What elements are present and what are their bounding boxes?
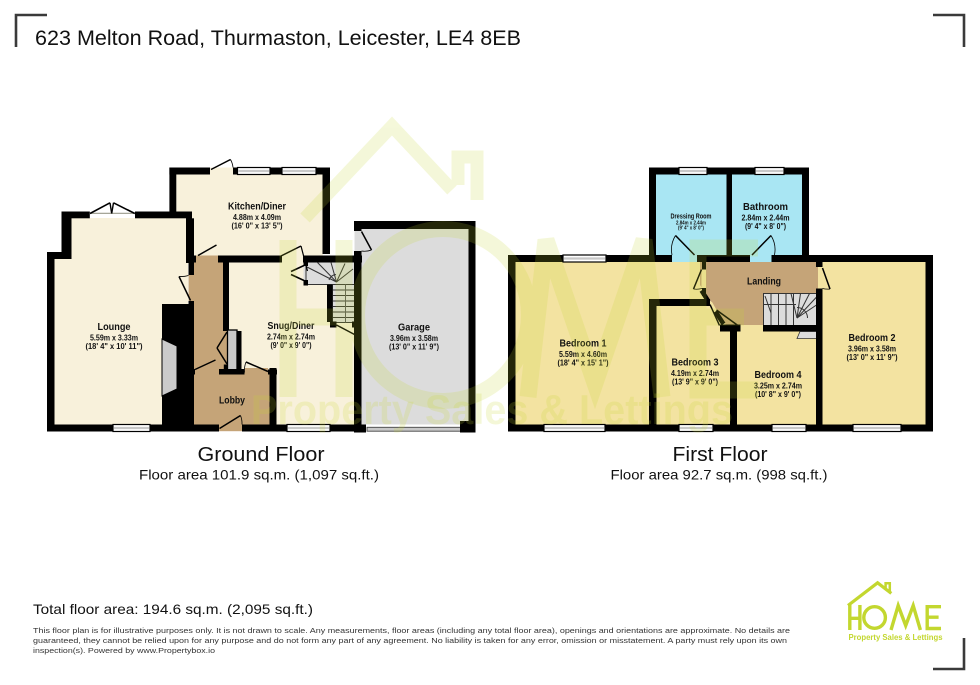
- svg-text:Property Sales & Lettings: Property Sales & Lettings: [849, 633, 944, 642]
- svg-text:(16' 0" x 13' 5"): (16' 0" x 13' 5"): [232, 221, 283, 231]
- svg-text:Bedroom 4: Bedroom 4: [755, 370, 803, 381]
- svg-text:Floor area 101.9 sq.m. (1,097: Floor area 101.9 sq.m. (1,097 sq.ft.): [139, 467, 379, 483]
- svg-text:Ground Floor: Ground Floor: [198, 443, 325, 466]
- svg-text:Landing: Landing: [747, 277, 781, 288]
- svg-text:623 Melton Road, Thurmaston, L: 623 Melton Road, Thurmaston, Leicester, …: [35, 27, 521, 50]
- svg-text:Lounge: Lounge: [98, 322, 132, 333]
- svg-text:(9' 4" x 8' 0"): (9' 4" x 8' 0"): [745, 221, 786, 231]
- svg-text:Bedroom 2: Bedroom 2: [849, 333, 897, 344]
- svg-text:Garage: Garage: [398, 323, 431, 334]
- svg-text:Floor area 92.7 sq.m. (998 sq.: Floor area 92.7 sq.m. (998 sq.ft.): [611, 467, 828, 483]
- svg-text:Kitchen/Diner: Kitchen/Diner: [228, 202, 286, 213]
- svg-text:Dressing Room: Dressing Room: [671, 212, 712, 221]
- svg-text:(13' 0" x 11' 9"): (13' 0" x 11' 9"): [847, 352, 898, 362]
- svg-text:Property Sales & Lettings: Property Sales & Lettings: [251, 386, 733, 433]
- svg-text:(18' 4" x 10' 11"): (18' 4" x 10' 11"): [86, 341, 143, 351]
- svg-text:This floor plan is for illustr: This floor plan is for illustrative purp…: [33, 626, 790, 635]
- svg-text:(9' 4" x 8' 0"): (9' 4" x 8' 0"): [678, 225, 704, 231]
- svg-text:Bathroom: Bathroom: [743, 202, 788, 213]
- svg-text:guaranteed, they cannot be rel: guaranteed, they cannot be relied upon f…: [33, 636, 787, 645]
- svg-text:Total floor area: 194.6 sq.m.: Total floor area: 194.6 sq.m. (2,095 sq.…: [33, 601, 313, 617]
- svg-text:First Floor: First Floor: [673, 443, 768, 466]
- svg-text:(10' 8" x 9' 0"): (10' 8" x 9' 0"): [755, 389, 801, 399]
- svg-text:inspection(s). Powered by www.: inspection(s). Powered by www.Propertybo…: [33, 646, 215, 655]
- svg-text:Lobby: Lobby: [219, 396, 245, 407]
- svg-text:(13' 0" x 11' 9"): (13' 0" x 11' 9"): [389, 342, 439, 352]
